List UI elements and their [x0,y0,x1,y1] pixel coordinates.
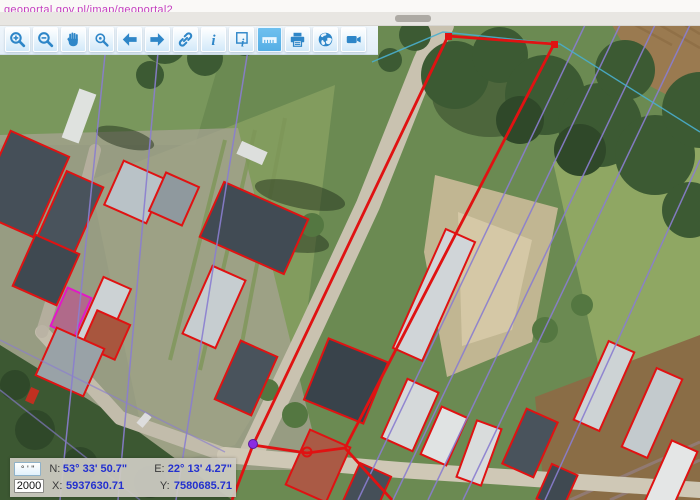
y-label: Y: [160,480,174,492]
magnifier-select-icon [92,30,111,49]
x-label: X: [52,480,66,492]
east-value: 22° 13' 4.27" [168,463,232,475]
globe-icon [316,30,335,49]
ruler-icon [260,30,279,49]
page-url-link[interactable]: geoportal.gov.pl/imap/geoportal2 [4,4,173,12]
measure-button[interactable] [257,27,282,52]
y-value: 7580685.71 [174,480,232,492]
aerial-map[interactable] [0,25,700,500]
north-value: 53° 33' 50.7" [63,463,146,475]
map-toolbar: ii [5,27,366,52]
x-value: 5937630.71 [66,480,152,492]
coordinate-panel: ° ' " N: 53° 33' 50.7" E: 22° 13' 4.27" … [10,458,236,497]
svg-text:i: i [211,33,216,49]
hand-icon [64,30,83,49]
web-services-button[interactable] [313,27,338,52]
previous-view-button[interactable] [117,27,142,52]
link-icon [176,30,195,49]
svg-text:i: i [241,36,245,49]
info-icon: i [204,30,223,49]
arrow-left-icon [120,30,139,49]
next-view-button[interactable] [145,27,170,52]
zoom-out-button[interactable] [33,27,58,52]
zoom-in-button[interactable] [5,27,30,52]
east-label: E: [154,463,168,475]
identify-icon: i [232,30,251,49]
camera-icon [344,30,363,49]
top-scrollbar-thumb[interactable] [395,15,431,22]
top-scrollbar[interactable] [0,12,700,26]
zoom-selection-button[interactable] [89,27,114,52]
arrow-right-icon [148,30,167,49]
dms-format-button[interactable]: ° ' " [14,462,41,476]
scale-input[interactable] [14,479,44,493]
identify-button[interactable]: i [229,27,254,52]
zoom-in-icon [8,30,27,49]
browser-edge-strip: geoportal.gov.pl/imap/geoportal2 [0,0,700,12]
zoom-out-icon [36,30,55,49]
video-button[interactable] [341,27,366,52]
info-button[interactable]: i [201,27,226,52]
pan-button[interactable] [61,27,86,52]
share-link-button[interactable] [173,27,198,52]
north-label: N: [49,463,63,475]
printer-icon [288,30,307,49]
map-viewport[interactable] [0,25,700,500]
print-button[interactable] [285,27,310,52]
